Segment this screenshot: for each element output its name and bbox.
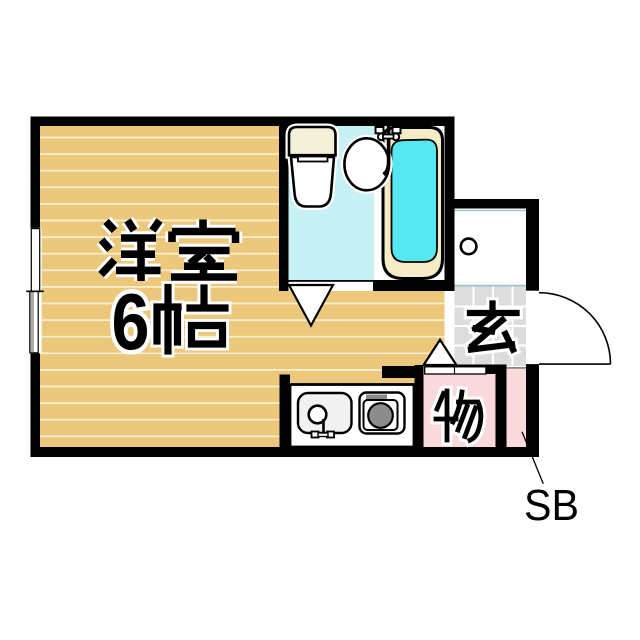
svg-text:SB: SB	[524, 481, 579, 530]
svg-text:6: 6	[112, 277, 150, 366]
